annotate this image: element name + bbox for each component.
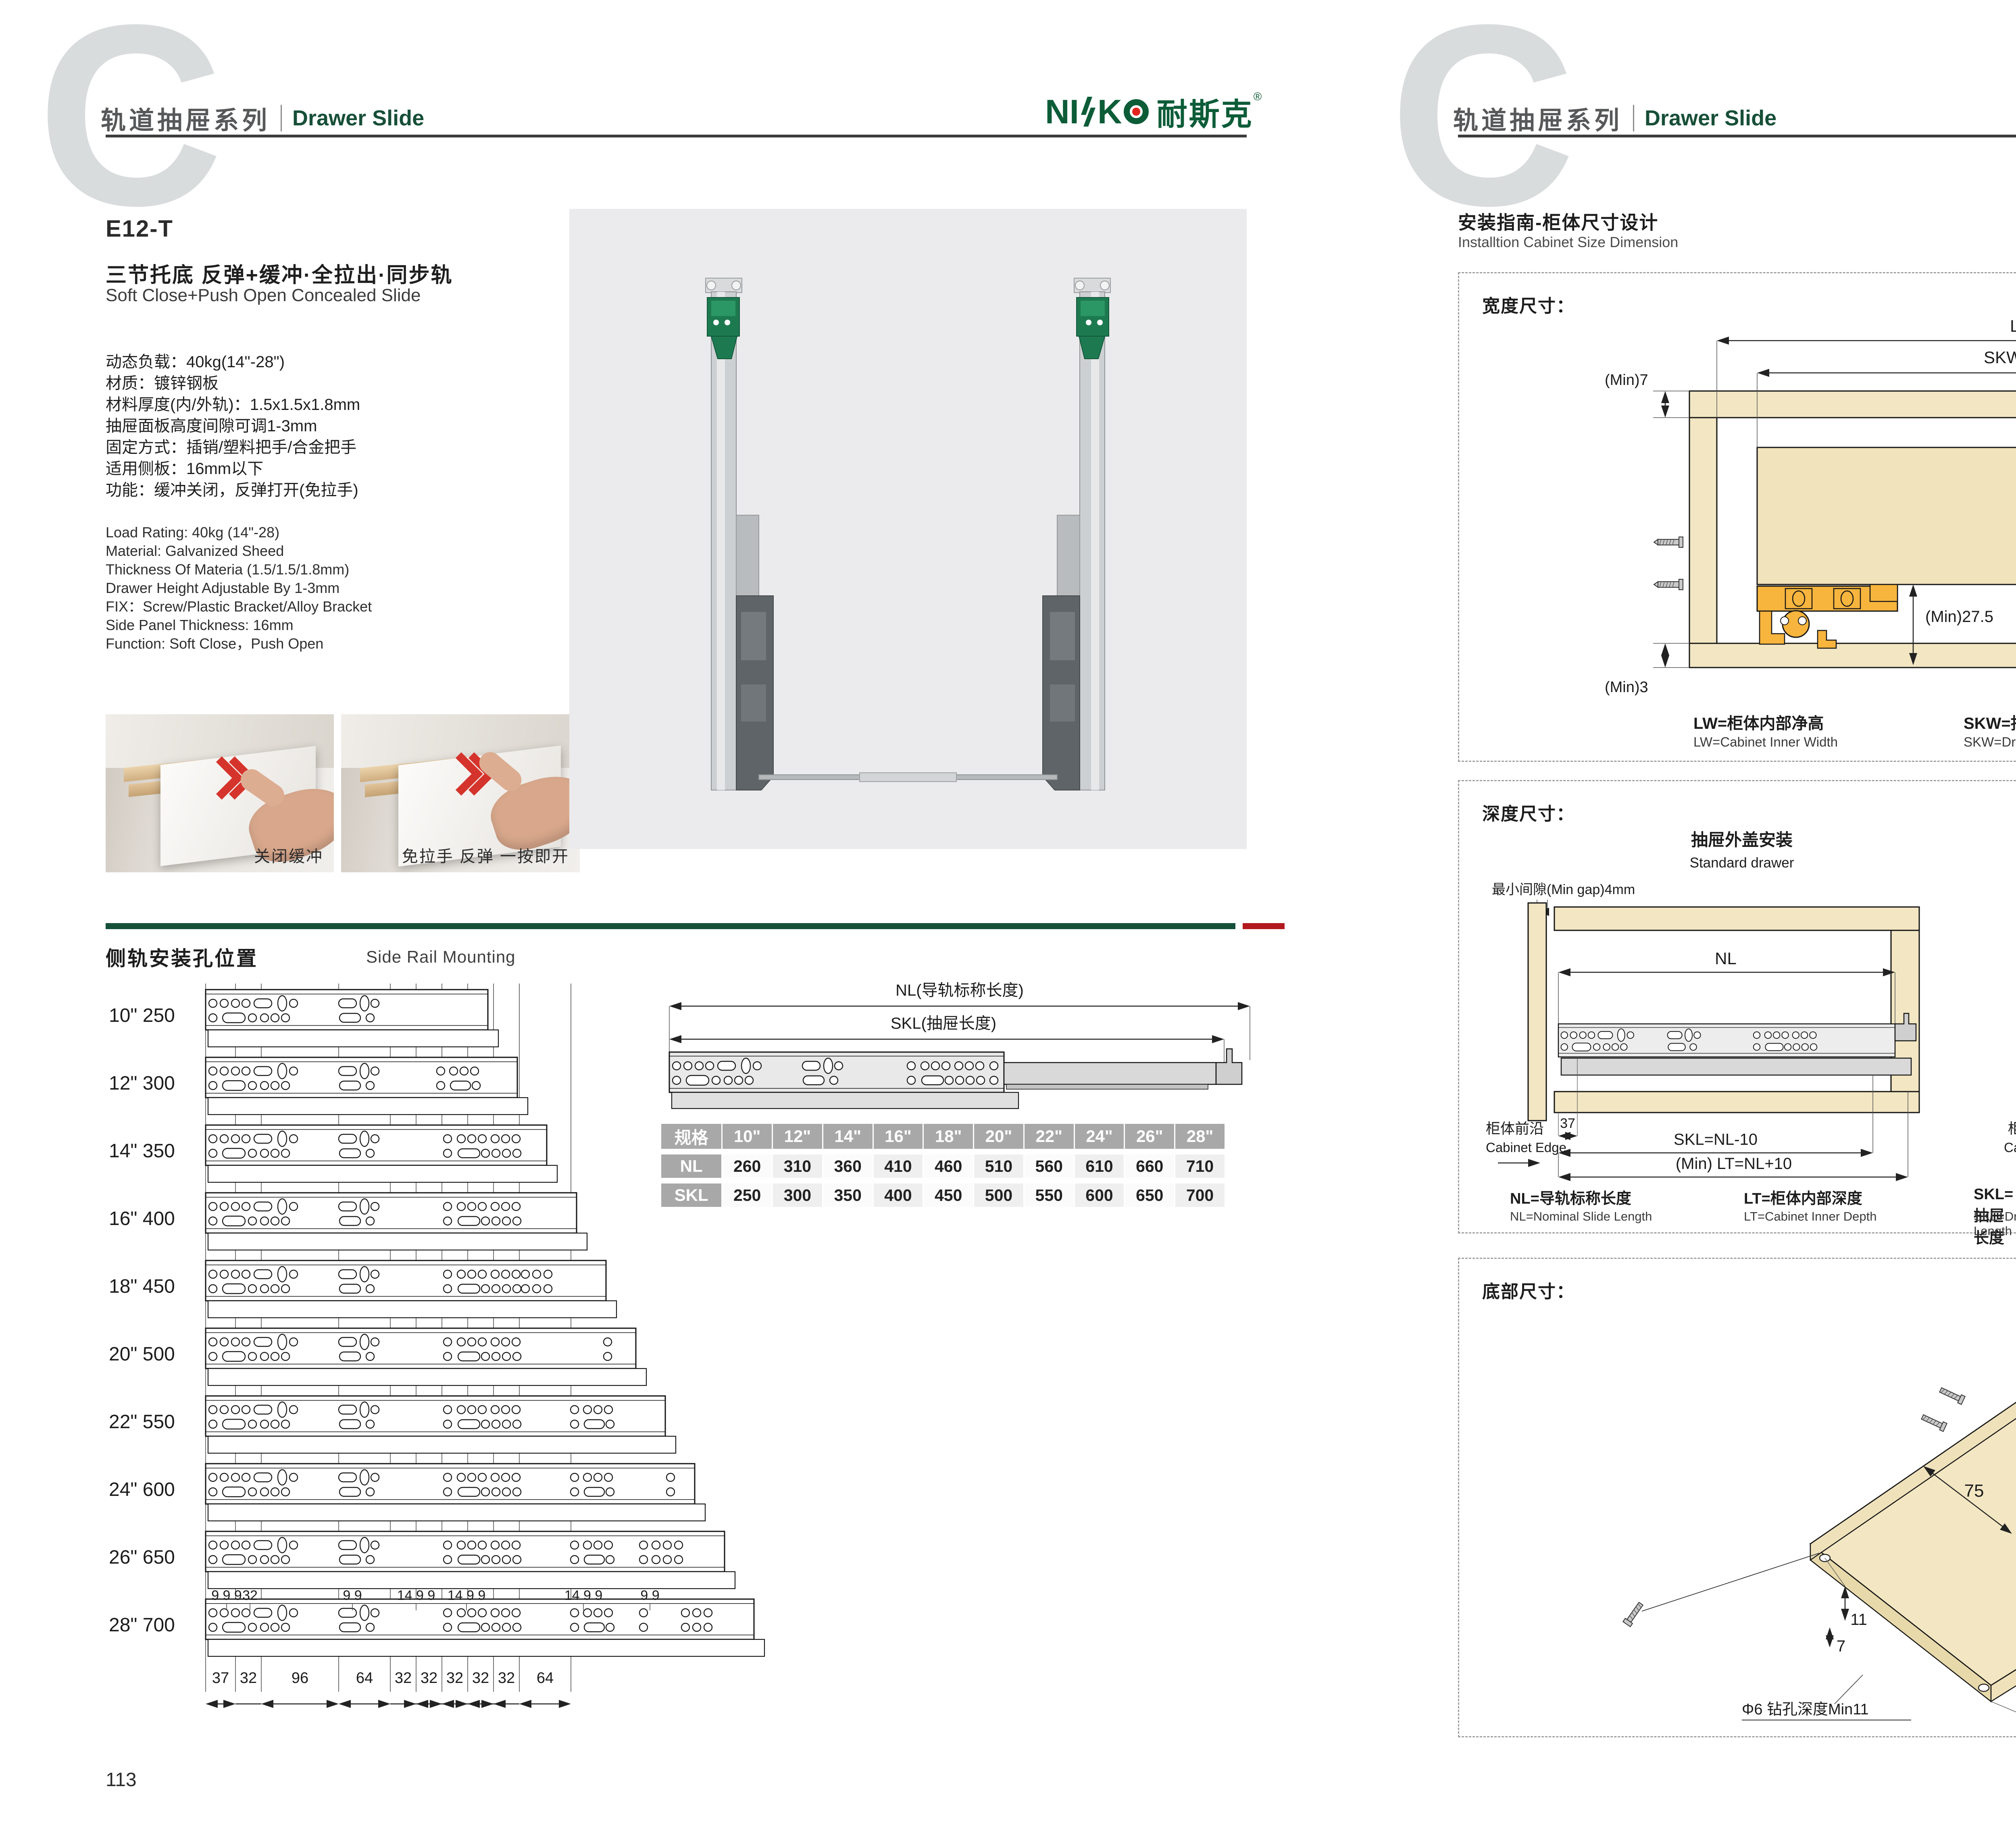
spec-line: Thickness Of Materia (1.5/1.5/1.8mm) xyxy=(106,560,372,579)
page-number-left: 113 xyxy=(106,1769,137,1791)
svg-text:32: 32 xyxy=(446,1670,463,1687)
section-red-bar xyxy=(1243,923,1285,929)
table-value-cell: 10" xyxy=(723,1124,772,1149)
rail-row xyxy=(206,1057,528,1115)
table-value-cell: 600 xyxy=(1075,1183,1124,1207)
table-value-cell: 360 xyxy=(823,1154,873,1178)
table-value-cell: 550 xyxy=(1025,1183,1074,1207)
table-value-cell: 300 xyxy=(773,1183,822,1207)
section-green-bar xyxy=(106,923,1235,929)
photo-caption: 免拉手 反弹 一按即开 xyxy=(402,843,569,867)
rail-row xyxy=(206,1193,587,1250)
table-label-cell: NL xyxy=(661,1154,721,1178)
legend-cn: SKW=抽屉宽度 xyxy=(1964,710,2016,734)
table-value-cell: 260 xyxy=(723,1154,772,1178)
spec-line: 功能：缓冲关闭，反弹打开(免拉手) xyxy=(106,480,360,501)
table-value-cell: 510 xyxy=(974,1154,1023,1178)
table-value-cell: 350 xyxy=(823,1183,873,1207)
table-value-cell: 16" xyxy=(874,1124,923,1149)
series-divider xyxy=(1633,105,1634,131)
rail-row xyxy=(206,1328,646,1385)
svg-text:柜体前沿: 柜体前沿 xyxy=(2008,1120,2016,1137)
svg-text:LW: LW xyxy=(2010,316,2016,335)
specs-list-cn: 动态负载：40kg(14"-28")材质：镀锌钢板材料厚度(内/外轨)：1.5x… xyxy=(106,352,360,501)
svg-text:20" 500: 20" 500 xyxy=(109,1344,175,1365)
table-label-cell: SKL xyxy=(661,1183,721,1207)
svg-text:7: 7 xyxy=(1837,1637,1845,1655)
spec-line: 材料厚度(内/外轨)：1.5x1.5x1.8mm xyxy=(106,394,360,416)
legend-cn: LW=柜体内部净高 xyxy=(1693,710,1824,734)
legend-cn: NL=导轨标称长度 xyxy=(1510,1186,1631,1208)
legend-en: SKW=Drawer Width xyxy=(1964,734,2016,750)
svg-text:(Min)27.5: (Min)27.5 xyxy=(1925,608,1993,626)
table-value-cell: 410 xyxy=(874,1154,923,1178)
table-value-cell: 14" xyxy=(823,1124,873,1149)
logo-o-icon xyxy=(1124,99,1149,124)
spec-line: 材质：镀锌钢板 xyxy=(106,373,360,394)
table-value-cell: 18" xyxy=(924,1124,973,1149)
svg-text:32: 32 xyxy=(242,1588,258,1603)
table-value-cell: 310 xyxy=(773,1154,822,1178)
table-value-cell: 250 xyxy=(723,1183,772,1207)
legend-cn: LT=柜体内部深度 xyxy=(1744,1186,1862,1208)
size-table: 规格10"12"14"16"18"20"22"24"26"28"NL260310… xyxy=(661,1124,1226,1213)
svg-text:Standard drawer: Standard drawer xyxy=(1690,855,1794,871)
legend-en: NL=Nominal Slide Length xyxy=(1510,1209,1652,1224)
svg-text:9 9 9: 9 9 9 xyxy=(211,1588,242,1603)
svg-text:37: 37 xyxy=(1560,1116,1575,1131)
svg-text:26" 650: 26" 650 xyxy=(109,1547,175,1568)
logo-k-text: K xyxy=(1098,92,1122,131)
depth-diagrams: 抽屉外盖安装Standard drawer最小间隙(Min gap)4mmNL3… xyxy=(1476,822,2016,1185)
photo-push-open: 免拉手 反弹 一按即开 xyxy=(341,714,580,872)
table-row: SKL250300350400450500550600650700 xyxy=(661,1183,1226,1207)
photo-caption: 关闭缓冲 xyxy=(254,843,323,867)
table-label-cell: 规格 xyxy=(661,1124,721,1149)
table-value-cell: 450 xyxy=(924,1183,973,1207)
svg-text:柜体前沿: 柜体前沿 xyxy=(1486,1120,1544,1137)
table-value-cell: 400 xyxy=(874,1183,923,1207)
nisko-logo: NI K 耐斯克 ® xyxy=(1045,89,1262,134)
install-guide-title-cn: 安装指南-柜体尺寸设计 xyxy=(1458,208,1658,235)
svg-text:14 9 9: 14 9 9 xyxy=(397,1588,435,1603)
logo-s-icon xyxy=(1080,97,1096,127)
spec-line: FIX：Screw/Plastic Bracket/Alloy Bracket xyxy=(106,597,372,616)
svg-text:18" 450: 18" 450 xyxy=(109,1276,175,1297)
svg-text:64: 64 xyxy=(356,1670,373,1687)
series-title-cn: 轨道抽屉系列 xyxy=(101,100,270,136)
table-value-cell: 610 xyxy=(1075,1154,1124,1178)
svg-text:12" 300: 12" 300 xyxy=(109,1073,175,1094)
svg-text:16" 400: 16" 400 xyxy=(109,1208,175,1229)
spec-line: 动态负载：40kg(14"-28") xyxy=(106,352,360,373)
table-value-cell: 24" xyxy=(1075,1124,1124,1149)
rail-row xyxy=(206,1260,616,1318)
svg-text:64: 64 xyxy=(537,1670,554,1687)
logo-red-dot-icon xyxy=(1132,108,1140,116)
rail-row xyxy=(206,990,498,1047)
spec-line: Material: Galvanized Sheed xyxy=(106,542,372,560)
product-photo-slides xyxy=(569,209,1247,849)
legend-en: SKL=Drawer Length xyxy=(1974,1209,2016,1238)
product-title-cn: 三节托底 反弹+缓冲·全拉出·同步轨 xyxy=(106,258,453,288)
series-title-en: Drawer Slide xyxy=(1645,106,1776,131)
rail-row xyxy=(206,1396,676,1453)
registered-mark: ® xyxy=(1254,90,1262,103)
logo-cn-text: 耐斯克 xyxy=(1157,89,1254,134)
svg-text:96: 96 xyxy=(292,1670,308,1687)
logo-ni-text: NI xyxy=(1045,92,1079,131)
series-title-cn: 轨道抽屉系列 xyxy=(1453,100,1622,136)
specs-list-en: Load Rating: 40kg (14"-28)Material: Galv… xyxy=(106,523,372,653)
svg-text:14 9 9: 14 9 9 xyxy=(448,1588,486,1603)
table-value-cell: 700 xyxy=(1175,1183,1225,1207)
width-cross-section-diagram: LWSKW=LW-42(Min)7(Min)3(Max)16121037(Min… xyxy=(1476,300,2016,707)
table-value-cell: 28" xyxy=(1175,1124,1225,1149)
table-value-cell: 460 xyxy=(924,1154,973,1178)
svg-text:14 9 9: 14 9 9 xyxy=(564,1588,603,1603)
table-value-cell: 20" xyxy=(974,1124,1023,1149)
svg-text:NL: NL xyxy=(1715,949,1737,968)
series-header-right: 轨道抽屉系列 Drawer Slide xyxy=(1453,100,1776,136)
svg-text:抽屉外盖安装: 抽屉外盖安装 xyxy=(1691,830,1793,849)
svg-text:(Min)3: (Min)3 xyxy=(1605,679,1648,696)
legend-en: LT=Cabinet Inner Depth xyxy=(1744,1209,1876,1224)
svg-text:最小间隙(Min gap)4mm: 最小间隙(Min gap)4mm xyxy=(1492,882,1635,897)
svg-text:Φ6 钻孔深度Min11: Φ6 钻孔深度Min11 xyxy=(1742,1701,1869,1718)
header-rule-left xyxy=(106,135,1247,137)
table-value-cell: 26" xyxy=(1125,1124,1174,1149)
svg-text:28" 700: 28" 700 xyxy=(109,1614,175,1636)
series-header-left: 轨道抽屉系列 Drawer Slide xyxy=(101,100,424,136)
svg-text:(Min) LT=NL+10: (Min) LT=NL+10 xyxy=(1676,1155,1792,1173)
series-divider xyxy=(281,105,282,131)
svg-text:Cabinet Edge: Cabinet Edge xyxy=(1486,1140,1566,1155)
rail-section-title-cn: 侧轨安装孔位置 xyxy=(106,942,258,971)
spec-line: Function: Soft Close，Push Open xyxy=(106,634,372,653)
svg-text:9 9: 9 9 xyxy=(640,1588,659,1603)
rail-row xyxy=(206,1599,764,1656)
table-value-cell: 560 xyxy=(1025,1154,1074,1178)
table-value-cell: 500 xyxy=(974,1183,1023,1207)
svg-text:14" 350: 14" 350 xyxy=(109,1140,175,1162)
rail-section-title-en: Side Rail Mounting xyxy=(366,947,516,967)
rail-row xyxy=(206,1464,705,1521)
svg-text:11: 11 xyxy=(1850,1611,1867,1629)
spec-line: Drawer Height Adjustable By 1-3mm xyxy=(106,579,372,597)
svg-text:32: 32 xyxy=(240,1670,257,1687)
spec-line: Side Panel Thickness: 16mm xyxy=(106,616,372,634)
spec-line: 抽屉面板高度间隙可调1-3mm xyxy=(106,416,360,437)
table-row: NL260310360410460510560610660710 xyxy=(661,1154,1226,1178)
svg-text:32: 32 xyxy=(421,1670,437,1687)
legend-en: LW=Cabinet Inner Width xyxy=(1693,734,1838,750)
table-value-cell: 660 xyxy=(1125,1154,1174,1178)
spec-line: 适用侧板：16mm以下 xyxy=(106,458,360,480)
table-value-cell: 710 xyxy=(1175,1154,1225,1178)
series-title-en: Drawer Slide xyxy=(292,106,424,131)
rail-row xyxy=(206,1125,557,1182)
svg-text:10" 250: 10" 250 xyxy=(109,1005,175,1026)
svg-text:NL(导轨标称长度): NL(导轨标称长度) xyxy=(896,982,1024,999)
svg-text:75: 75 xyxy=(1964,1481,1984,1501)
svg-text:32: 32 xyxy=(472,1670,489,1687)
svg-text:SKW=LW-42: SKW=LW-42 xyxy=(1984,348,2016,367)
svg-text:32: 32 xyxy=(498,1670,515,1687)
svg-text:24" 600: 24" 600 xyxy=(109,1479,175,1500)
svg-text:32: 32 xyxy=(395,1670,412,1687)
table-row: 规格10"12"14"16"18"20"22"24"26"28" xyxy=(661,1124,1226,1149)
svg-text:(Min)7: (Min)7 xyxy=(1605,372,1648,389)
bottom-isometric-diagram: 7585117Φ6 钻孔深度Min11抽屉长度SKL=导轨标称长度NL-10 xyxy=(1484,1280,2016,1735)
svg-text:SKL(抽屉长度): SKL(抽屉长度) xyxy=(891,1015,996,1032)
product-title-en: Soft Close+Push Open Concealed Slide xyxy=(106,285,421,306)
svg-text:37: 37 xyxy=(212,1670,229,1687)
model-code: E12-T xyxy=(106,215,173,242)
svg-text:9 9: 9 9 xyxy=(343,1588,362,1603)
install-guide-title-en: Installtion Cabinet Size Dimension xyxy=(1458,234,1678,251)
header-rule-right xyxy=(1458,135,2016,137)
table-value-cell: 22" xyxy=(1025,1124,1074,1149)
catalog-spread: C 轨道抽屉系列 Drawer Slide NI K 耐斯克 ® E12-T 三… xyxy=(0,0,2016,1847)
nl-skl-diagram: NL(导轨标称长度)SKL(抽屉长度) xyxy=(661,980,1258,1113)
svg-text:22" 550: 22" 550 xyxy=(109,1411,175,1433)
svg-text:Cabinet Edge: Cabinet Edge xyxy=(2004,1140,2016,1155)
photo-soft-close: 关闭缓冲 xyxy=(106,714,334,872)
spec-line: 固定方式：插销/塑料把手/合金把手 xyxy=(106,437,360,458)
spec-line: Load Rating: 40kg (14"-28) xyxy=(106,523,372,542)
svg-text:SKL=NL-10: SKL=NL-10 xyxy=(1674,1131,1758,1148)
table-value-cell: 650 xyxy=(1125,1183,1174,1207)
depth-section-title: 深度尺寸： xyxy=(1482,799,1575,825)
rail-row xyxy=(206,1531,735,1589)
table-value-cell: 12" xyxy=(773,1124,822,1149)
